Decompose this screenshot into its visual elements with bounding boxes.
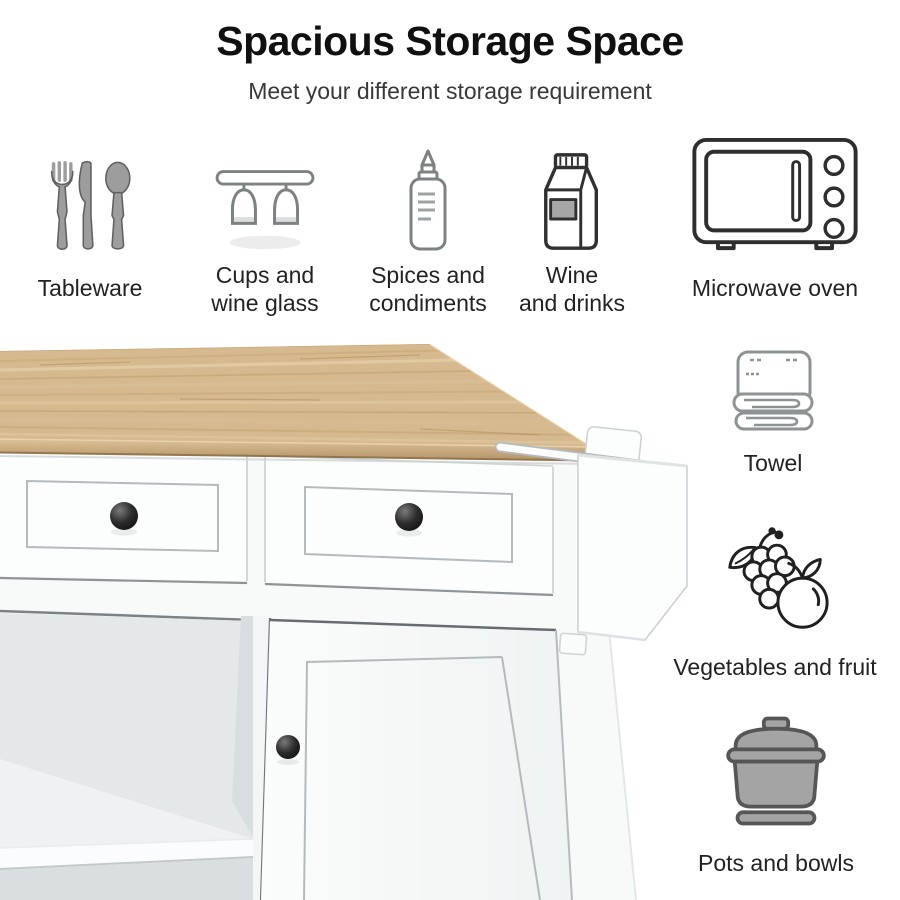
pot-icon (715, 704, 837, 843)
right-drawer (265, 456, 553, 595)
feature-label: Towel (744, 449, 803, 479)
tableware-icon (8, 140, 172, 254)
vegetables-fruit-icon (716, 526, 834, 647)
drink-carton-icon (490, 140, 654, 254)
drawer-knob (395, 503, 423, 531)
feature-microwave: Microwave oven (663, 140, 887, 316)
feature-towel: Towel (690, 344, 856, 479)
door-knob (276, 735, 300, 759)
feature-cups: Cups and wine glass (183, 140, 347, 317)
feature-label: Cups and wine glass (211, 262, 318, 317)
cabinet-door (253, 615, 572, 900)
feature-spices: Spices and condiments (346, 140, 510, 317)
page-title: Spacious Storage Space (0, 18, 900, 65)
promo-page: Spacious Storage Space Meet your differe… (0, 0, 900, 900)
feature-label: Wine and drinks (519, 262, 625, 317)
feature-wine: Wine and drinks (490, 140, 654, 317)
open-shelves (0, 611, 253, 900)
page-subtitle: Meet your different storage requirement (0, 78, 900, 105)
condiment-bottle-icon (346, 140, 510, 254)
feature-label: Tableware (38, 262, 143, 316)
feature-tableware: Tableware (8, 140, 172, 316)
feature-label: Vegetables and fruit (673, 653, 876, 683)
feature-label: Microwave oven (692, 262, 858, 316)
feature-label: Spices and condiments (369, 262, 487, 317)
header: Spacious Storage Space Meet your differe… (0, 18, 900, 105)
product-image (0, 339, 700, 900)
left-drawer (0, 451, 247, 583)
towel-icon (726, 344, 820, 443)
drawer-knob (110, 502, 138, 530)
wine-glass-rack-icon (183, 140, 347, 254)
feature-label: Pots and bowls (698, 849, 854, 879)
microwave-oven-icon (663, 140, 887, 254)
